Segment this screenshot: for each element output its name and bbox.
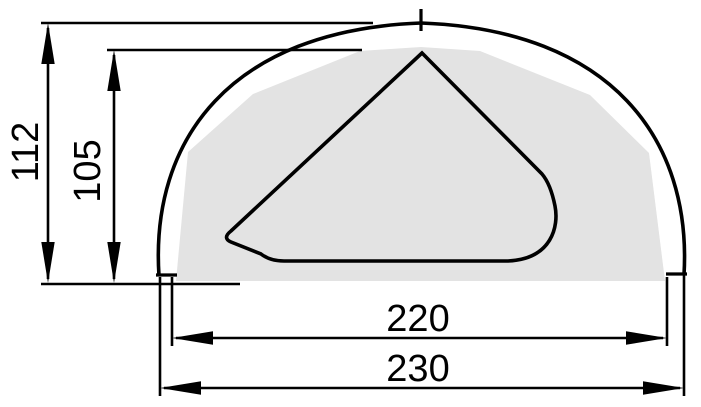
cross-section-drawing: 112 105 220 230: [0, 0, 701, 407]
arrow-up-inner-height: [107, 50, 120, 91]
arrow-down-outer-height: [41, 242, 54, 283]
arrow-right-outer-width: [643, 381, 684, 394]
dimension-label-outer-height: 112: [5, 122, 47, 183]
dimension-label-outer-width: 230: [386, 348, 449, 390]
dimension-label-inner-height: 105: [67, 139, 109, 202]
arrow-left-outer-width: [160, 381, 201, 394]
shaded-inner-region: [176, 47, 665, 281]
dimension-inner-width: 220: [172, 277, 667, 346]
dimension-label-inner-width: 220: [386, 298, 449, 340]
arrow-down-inner-height: [107, 242, 120, 283]
technical-drawing-canvas: 112 105 220 230: [0, 0, 701, 407]
arrow-right-inner-width: [626, 331, 667, 344]
arrow-up-outer-height: [41, 23, 54, 64]
arrow-left-inner-width: [172, 331, 213, 344]
